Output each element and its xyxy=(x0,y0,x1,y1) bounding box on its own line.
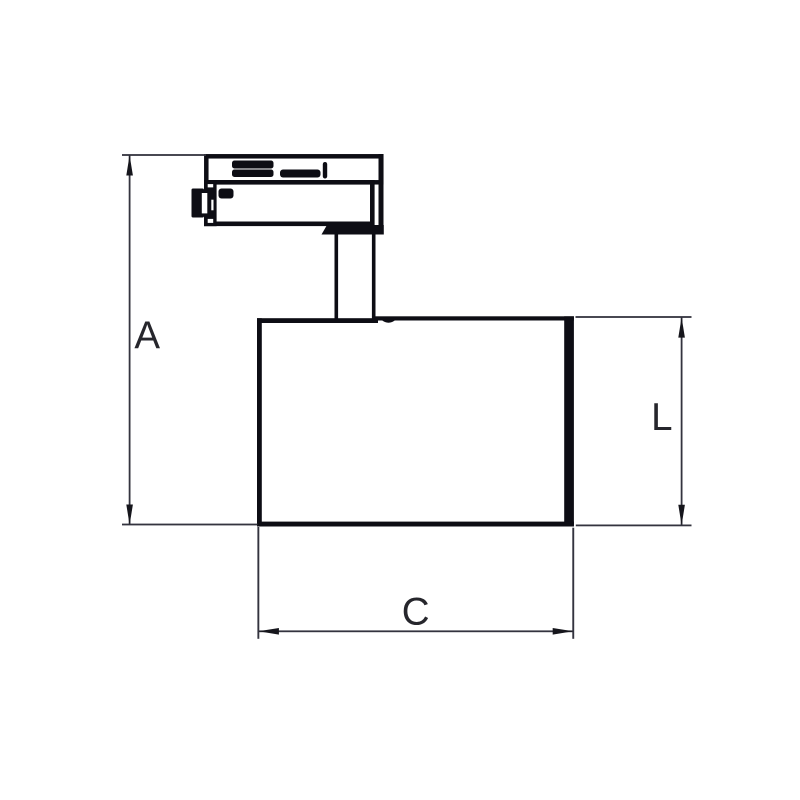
svg-text:C: C xyxy=(402,591,430,634)
svg-text:L: L xyxy=(651,396,672,439)
svg-text:A: A xyxy=(134,315,160,358)
